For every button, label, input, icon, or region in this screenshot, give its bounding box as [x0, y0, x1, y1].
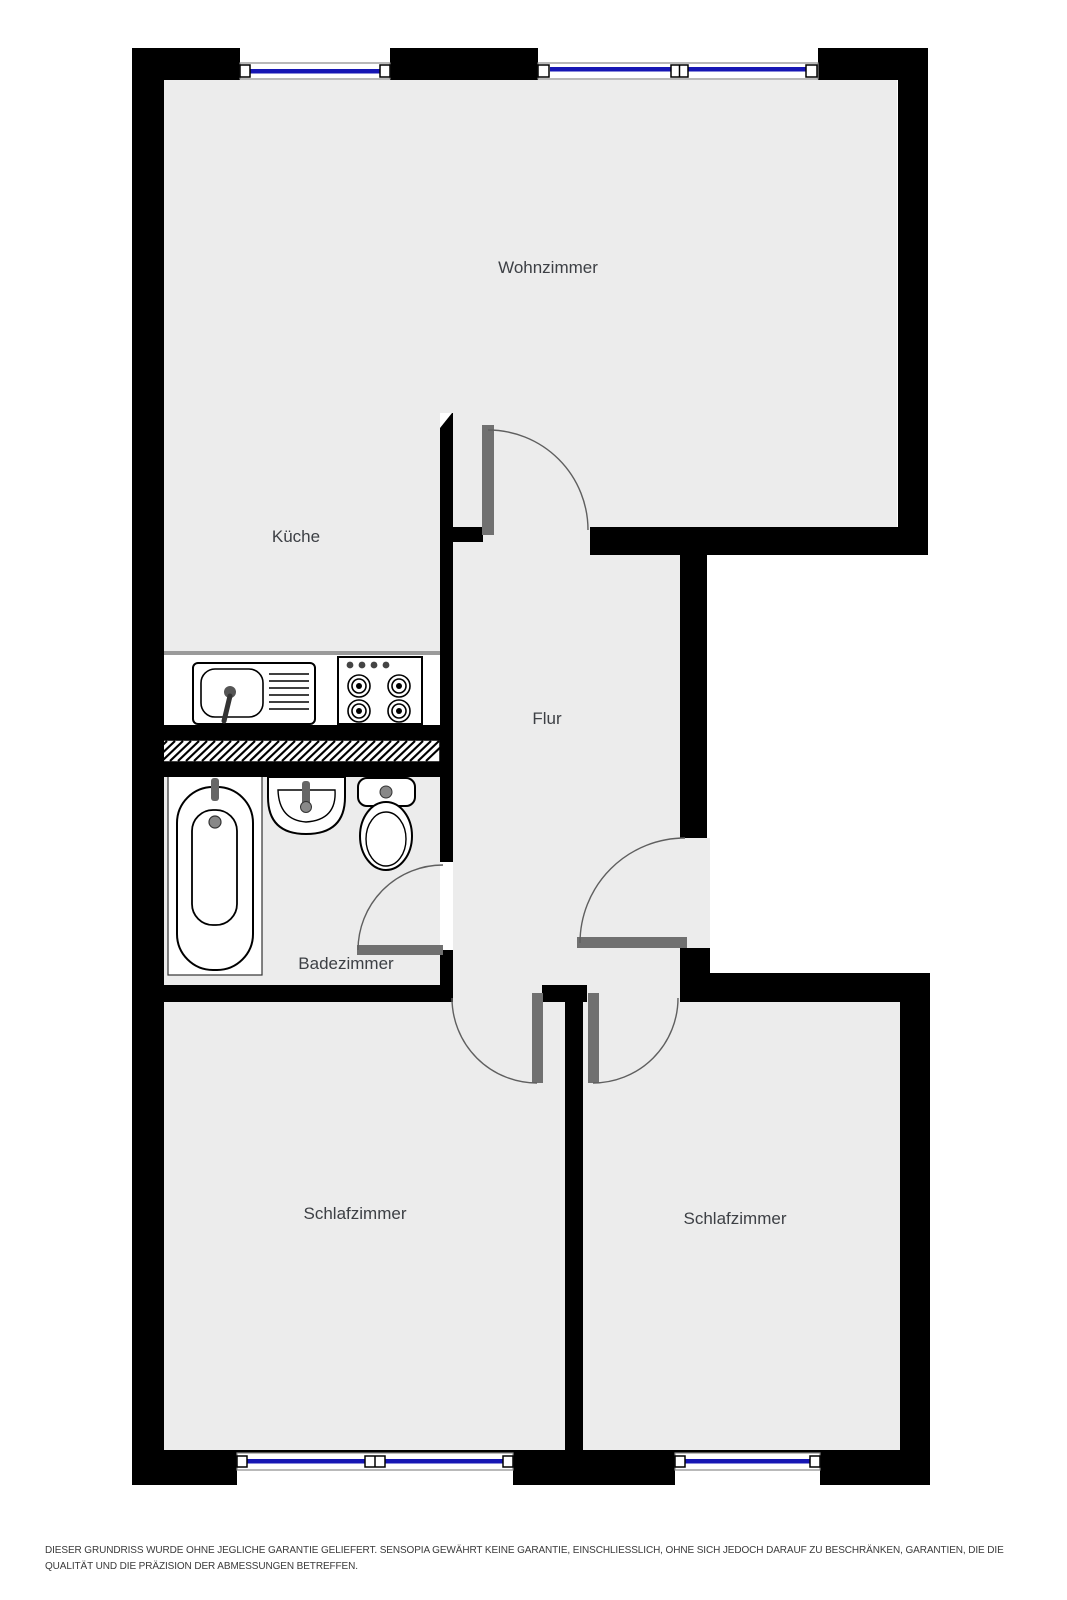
entry-nook-floor — [680, 838, 710, 950]
schlafzimmer-rechts-window — [675, 1453, 820, 1488]
window-mullion — [365, 1456, 385, 1467]
kitchen-sink-fixture — [193, 663, 315, 724]
shaft-lower-wall — [163, 762, 440, 777]
outer-wall-left — [132, 48, 164, 1485]
badezimmer-label: Badezimmer — [298, 954, 394, 973]
schlafzimmer-links-window — [237, 1453, 513, 1488]
wohnzimmer-label: Wohnzimmer — [498, 258, 598, 277]
kitchen-counter — [163, 651, 440, 725]
kueche-floor — [163, 80, 440, 651]
window-mullion — [671, 65, 688, 77]
bathtub-faucet — [211, 778, 219, 801]
entry-corner-wall — [680, 948, 710, 1002]
outer-wall-right-upper — [898, 48, 928, 555]
schlafzimmer-links-floor — [163, 1002, 565, 1450]
counter-edge-line — [163, 651, 440, 655]
disclaimer-line-2: QUALITÄT UND DIE PRÄZISION DER ABMESSUNG… — [45, 1561, 358, 1572]
bathtub-fixture — [168, 776, 262, 975]
outer-wall-right-lower — [900, 973, 930, 1485]
wohnzimmer-window-2 — [538, 63, 818, 79]
schlafzimmer-rechts-label: Schlafzimmer — [684, 1209, 787, 1228]
badezimmer-bottom-wall — [163, 985, 453, 1002]
bedroom-divider-wall — [565, 1002, 583, 1485]
toilet-fixture — [358, 778, 415, 870]
flur-floor — [453, 527, 680, 1002]
counter-back-wall — [163, 725, 440, 740]
wohnzimmer-window-1 — [240, 63, 390, 79]
bathroom-sink-fixture — [268, 777, 345, 834]
schlafzimmer-rechts-top-wall — [710, 973, 930, 1002]
disclaimer-line-1: DIESER GRUNDRISS WURDE OHNE JEGLICHE GAR… — [45, 1545, 1004, 1556]
kitchen-stove-fixture — [338, 657, 422, 724]
wohnzimmer-door-stub — [452, 527, 483, 542]
kueche-label: Küche — [272, 527, 320, 546]
kueche-flur-divider — [440, 413, 453, 862]
shaft-hatch — [146, 740, 447, 762]
flur-label: Flur — [532, 709, 562, 728]
floorplan-drawing: Wohnzimmer Küche Flur Badezimmer Schlafz… — [0, 0, 1067, 1600]
schlafzimmer-links-label: Schlafzimmer — [304, 1204, 407, 1223]
flur-right-wall — [680, 542, 707, 838]
bedroom-door-stub — [542, 985, 587, 1002]
wohnzimmer-bottom-wall — [590, 527, 928, 555]
top-pier-left — [132, 48, 240, 80]
floorplan-page: Wohnzimmer Küche Flur Badezimmer Schlafz… — [0, 0, 1067, 1600]
top-pier-middle — [390, 48, 538, 80]
